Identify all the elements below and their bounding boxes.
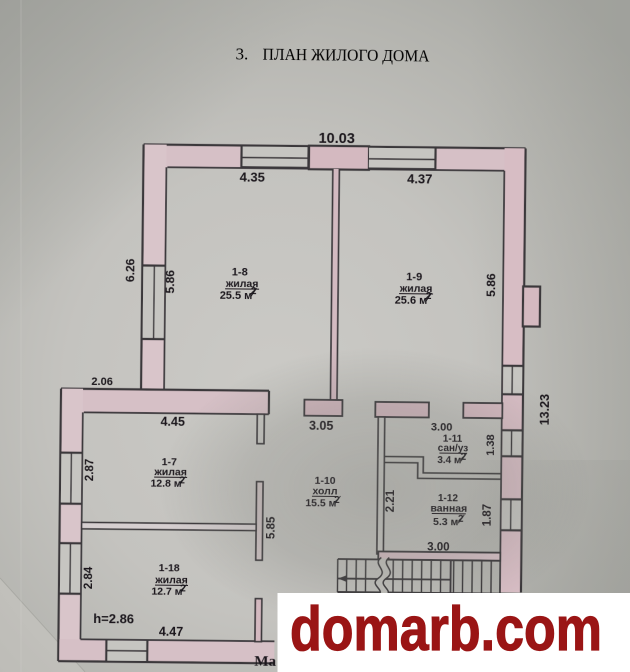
- svg-text:1-9: 1-9: [406, 271, 422, 283]
- svg-text:4.45: 4.45: [160, 415, 185, 429]
- svg-text:12.7 м: 12.7 м: [151, 586, 182, 598]
- svg-text:4.35: 4.35: [240, 169, 265, 184]
- svg-text:1-8: 1-8: [232, 266, 248, 278]
- svg-text:25.6 м: 25.6 м: [395, 295, 428, 307]
- svg-text:6.26: 6.26: [123, 258, 137, 282]
- svg-text:3.: 3.: [235, 44, 248, 63]
- svg-text:25.5 м: 25.5 м: [220, 290, 253, 302]
- svg-text:4.37: 4.37: [407, 171, 432, 186]
- svg-text:5.86: 5.86: [163, 270, 177, 294]
- svg-text:domarb.com: domarb.com: [290, 595, 602, 664]
- svg-text:ПЛАН ЖИЛОГО ДОМА: ПЛАН ЖИЛОГО ДОМА: [262, 45, 430, 66]
- svg-text:2.06: 2.06: [91, 376, 113, 388]
- svg-text:4.47: 4.47: [159, 625, 184, 639]
- svg-text:2.87: 2.87: [84, 459, 96, 482]
- svg-text:Ма: Ма: [254, 654, 276, 670]
- svg-text:2.84: 2.84: [83, 566, 95, 589]
- svg-text:h=2.86: h=2.86: [93, 611, 134, 626]
- svg-text:1-18: 1-18: [159, 562, 180, 574]
- svg-text:5.86: 5.86: [484, 273, 498, 297]
- svg-text:10.03: 10.03: [318, 131, 354, 147]
